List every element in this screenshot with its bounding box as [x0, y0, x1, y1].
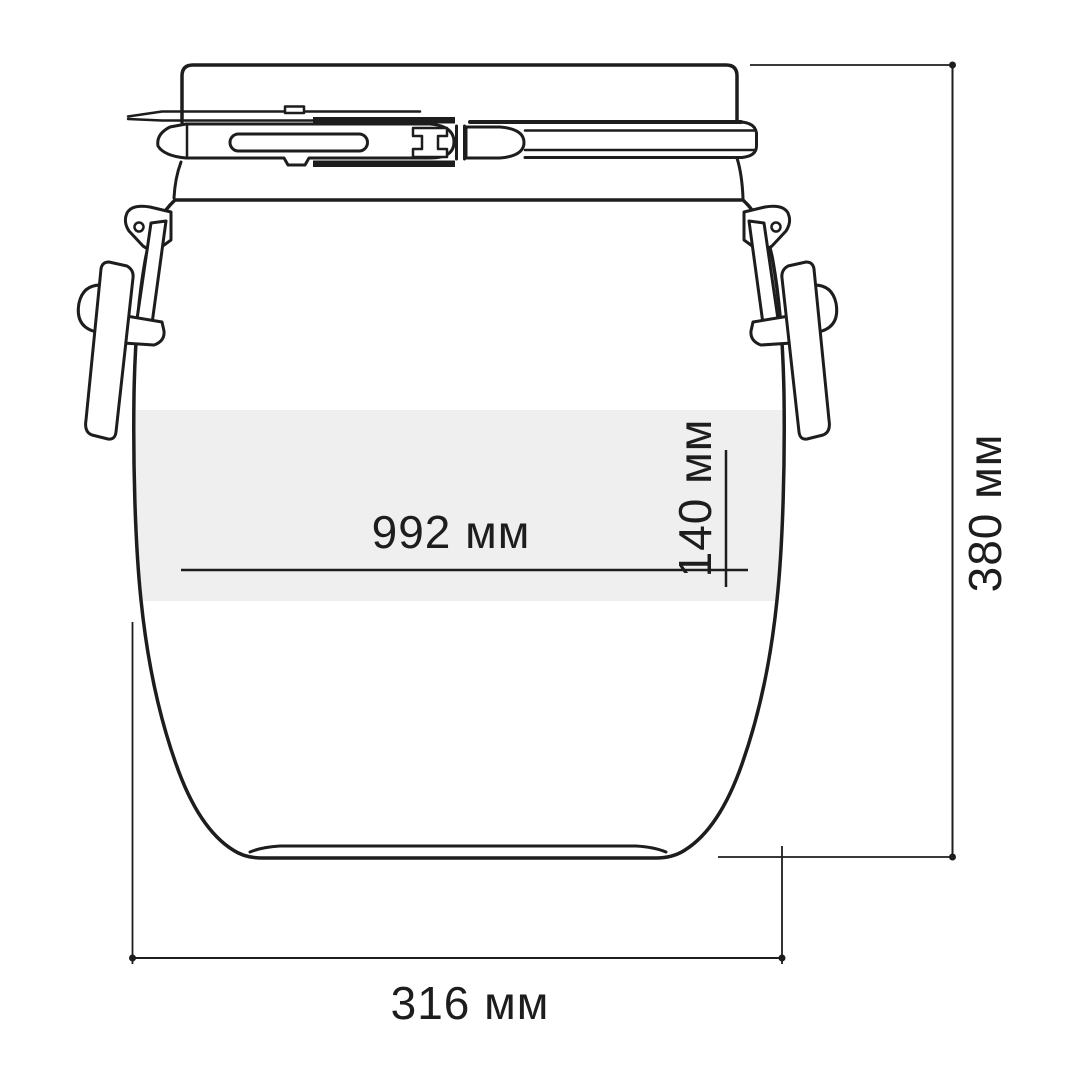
lever-bottom-bar — [313, 161, 455, 168]
handle-left — [78, 206, 171, 439]
dim-380-label: 380 мм — [959, 434, 1011, 593]
latch-tab — [466, 127, 524, 158]
neck-right — [737, 158, 743, 198]
bottom-rim-line — [250, 846, 666, 852]
handle-right — [744, 206, 837, 439]
dim-140-label: 140 мм — [669, 419, 721, 578]
dim-bottom-width: 316 мм — [129, 622, 786, 1029]
lid-outline — [182, 65, 737, 122]
dim-380-dot-top — [949, 62, 956, 69]
dim-316-label: 316 мм — [391, 977, 550, 1029]
dim-380-dot-bottom — [949, 854, 956, 861]
lid — [182, 65, 737, 122]
dim-992-label: 992 мм — [372, 506, 531, 558]
clamp-lever — [158, 124, 454, 165]
diagram-canvas: 992 мм 140 мм 380 мм — [0, 0, 1084, 1084]
dim-316-dot-right — [779, 955, 786, 962]
dim-316-dot-left — [129, 955, 136, 962]
dim-label-area-height: 140 мм — [669, 419, 726, 587]
neck-left — [174, 162, 181, 198]
lever-slot — [230, 134, 367, 151]
barrel-dimension-drawing: 992 мм 140 мм 380 мм — [0, 0, 1084, 1084]
lever-top-bar — [313, 117, 455, 124]
lever-strip-notch — [285, 107, 304, 114]
band-right-cap — [741, 122, 757, 158]
